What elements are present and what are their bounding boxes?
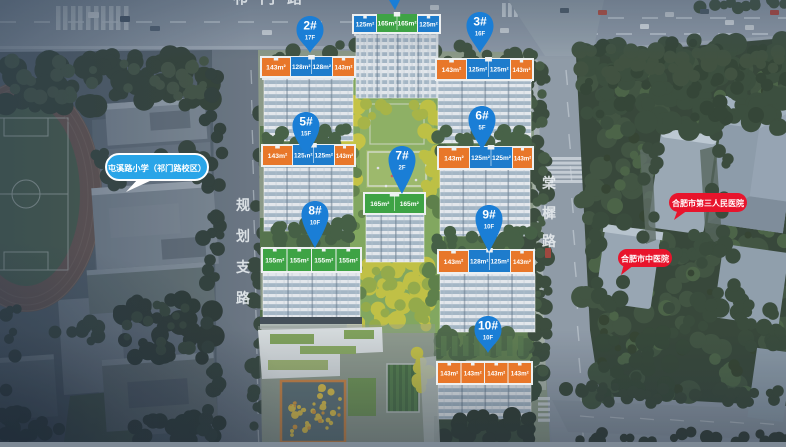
svg-text:125m²: 125m² [419,21,437,28]
svg-text:路: 路 [236,290,251,306]
svg-text:143m²: 143m² [268,153,288,160]
svg-text:125m²: 125m² [471,155,491,162]
svg-text:128m²: 128m² [470,258,488,265]
svg-text:屯溪路小学（祁门路校区）: 屯溪路小学（祁门路校区） [108,163,206,173]
svg-text:143m²: 143m² [444,156,464,163]
svg-text:祁门路: 祁门路 [233,0,314,7]
svg-text:10#: 10# [478,319,498,333]
svg-text:2#: 2# [303,19,317,33]
svg-text:165m²: 165m² [370,201,390,208]
svg-text:143m²: 143m² [440,370,458,377]
svg-text:规: 规 [236,197,250,213]
svg-text:棠: 棠 [541,175,557,191]
svg-text:128m²: 128m² [313,64,331,71]
svg-text:樨: 樨 [542,205,556,221]
svg-text:路: 路 [542,233,557,249]
svg-text:10F: 10F [310,221,321,227]
svg-text:合肥市第三人民医院: 合肥市第三人民医院 [671,198,744,208]
svg-text:9#: 9# [482,208,496,222]
svg-text:143m²: 143m² [511,370,529,377]
svg-text:155m²: 155m² [339,258,359,265]
svg-text:143m²: 143m² [266,65,286,72]
svg-text:143m²: 143m² [335,64,353,71]
svg-text:5#: 5# [299,115,313,129]
svg-text:165m²: 165m² [400,201,420,208]
svg-text:3#: 3# [473,15,487,29]
svg-text:143m²: 143m² [514,155,531,162]
svg-text:16F: 16F [475,32,486,38]
svg-text:143m²: 143m² [513,67,531,74]
svg-text:17F: 17F [305,36,316,42]
svg-text:165m²: 165m² [377,21,397,28]
svg-text:143m²: 143m² [513,259,531,266]
svg-text:128m²: 128m² [292,64,310,71]
svg-text:155m²: 155m² [290,258,310,265]
svg-text:6#: 6# [475,109,489,123]
svg-text:143m²: 143m² [442,67,462,74]
svg-text:143m²: 143m² [464,370,482,377]
svg-text:5F: 5F [478,126,485,132]
svg-text:125m²: 125m² [490,66,510,73]
svg-text:143m²: 143m² [336,153,353,160]
svg-text:125m²: 125m² [356,21,374,28]
svg-text:8#: 8# [308,204,322,218]
svg-text:125m²: 125m² [294,152,312,159]
svg-text:125m²: 125m² [468,66,488,73]
svg-text:155m²: 155m² [314,258,334,265]
svg-text:125m²: 125m² [492,155,512,162]
svg-text:划: 划 [236,228,250,244]
svg-text:143m²: 143m² [487,370,505,377]
svg-text:2F: 2F [398,166,405,172]
svg-text:10F: 10F [483,336,494,342]
svg-text:165m²: 165m² [397,21,417,28]
svg-text:125m²: 125m² [315,152,333,159]
svg-text:7#: 7# [395,149,409,163]
svg-text:125m²: 125m² [491,258,509,265]
svg-text:支: 支 [235,259,251,275]
svg-text:155m²: 155m² [265,258,285,265]
svg-text:15F: 15F [301,132,312,138]
svg-text:10F: 10F [484,225,495,231]
svg-text:合肥市中医院: 合肥市中医院 [620,254,669,264]
svg-text:143m²: 143m² [444,259,464,266]
